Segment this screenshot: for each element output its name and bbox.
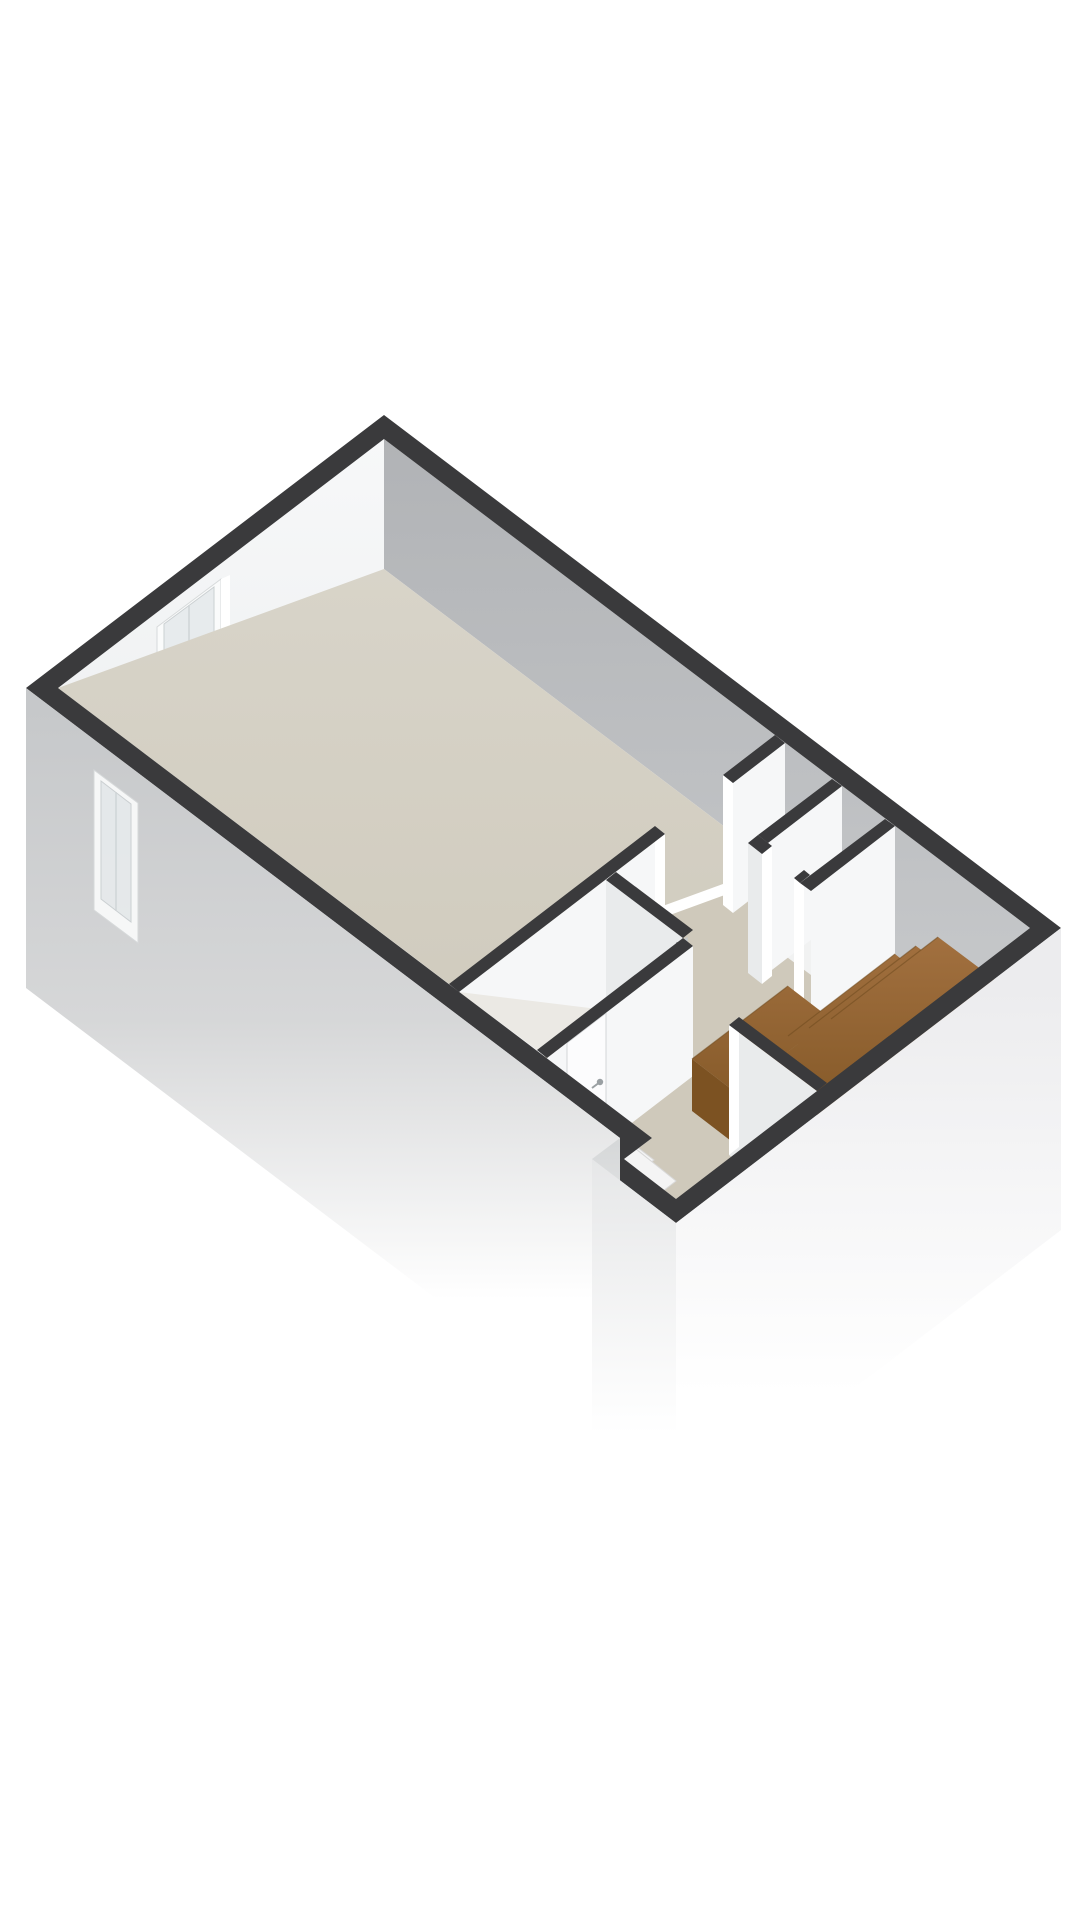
vestibule-exterior-wall (592, 1159, 676, 1525)
door-jamb (762, 846, 772, 984)
floorplan-stage (0, 0, 1080, 1920)
door-jamb (794, 870, 804, 1008)
door-jamb (723, 775, 733, 913)
wall-face (748, 843, 762, 984)
door-jamb (729, 1017, 739, 1155)
building (26, 415, 1061, 1525)
floorplan-canvas[interactable] (0, 0, 1080, 1920)
